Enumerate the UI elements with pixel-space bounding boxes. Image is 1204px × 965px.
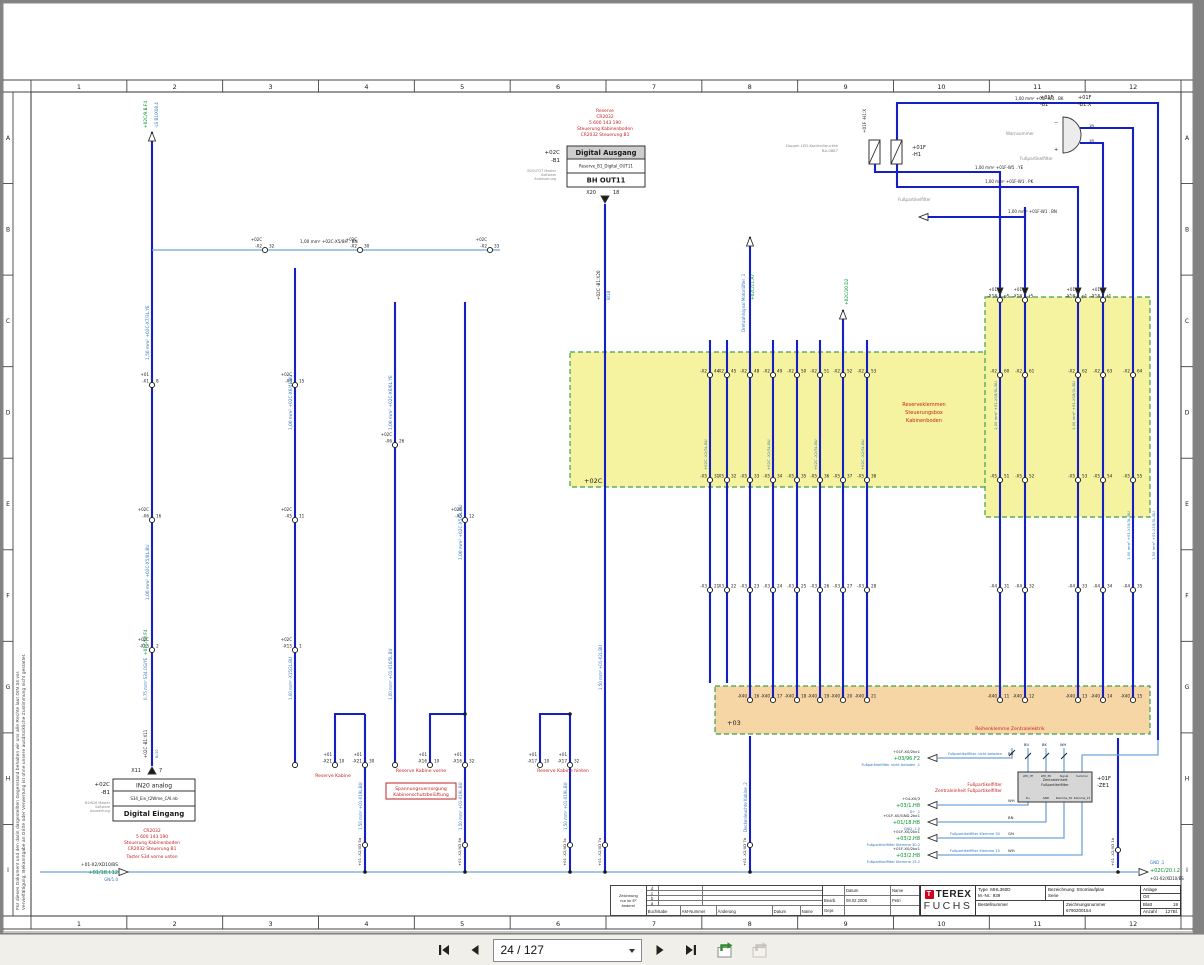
svg-text:-X2: -X2 xyxy=(350,244,357,249)
svg-text:-X5: -X5 xyxy=(787,474,794,479)
svg-text:64: 64 xyxy=(1137,369,1143,374)
svg-text:1,00 mm² +01-X18/1L.BU: 1,00 mm² +01-X18/1L.BU xyxy=(1071,381,1076,430)
svg-text:B/10: B/10 xyxy=(154,749,159,758)
next-view-button[interactable] xyxy=(744,938,774,962)
svg-text:+02C: +02C xyxy=(476,237,487,242)
svg-text:15: 15 xyxy=(1137,694,1143,699)
svg-text:+01: +01 xyxy=(354,752,363,757)
svg-text:-X5: -X5 xyxy=(285,514,292,519)
svg-text:1R: 1R xyxy=(1089,138,1094,143)
svg-text:Auswertung: Auswertung xyxy=(90,809,110,813)
svg-text:28: 28 xyxy=(871,584,877,589)
anlage-label: Anlage xyxy=(1143,887,1157,892)
svg-text:F: F xyxy=(1185,593,1189,600)
previous-page-icon xyxy=(468,943,482,957)
svg-text:Reserve Kabine vorne: Reserve Kabine vorne xyxy=(396,768,446,774)
svg-text:45: 45 xyxy=(731,369,737,374)
svg-text:+01 -X2/XD 1b: +01 -X2/XD 1b xyxy=(1110,837,1115,866)
type-cell: Type MHL360D M.-Nr.: 939 xyxy=(976,886,1046,900)
svg-text:Digital Eingang: Digital Eingang xyxy=(124,810,184,818)
svg-text:+02C/20.I.2: +02C/20.I.2 xyxy=(1150,868,1180,874)
svg-text:E: E xyxy=(6,501,10,508)
terex-fuchs-logo: TTEREX FUCHS xyxy=(921,886,976,915)
svg-text:50: 50 xyxy=(801,369,807,374)
last-page-button[interactable] xyxy=(678,938,704,962)
svg-text:7: 7 xyxy=(652,920,656,928)
svg-text:+01 -X2/XD 7b: +01 -X2/XD 7b xyxy=(742,837,747,866)
svg-text:+01: +01 xyxy=(989,287,998,292)
svg-text:-X40: -X40 xyxy=(1091,694,1101,699)
rev-letter: c xyxy=(647,891,659,895)
svg-text:-X6: -X6 xyxy=(385,439,392,444)
svg-text:+02C -X2/5L.BU: +02C -X2/5L.BU xyxy=(766,439,771,470)
svg-text:15: 15 xyxy=(299,379,305,384)
svg-text:GN/1.0: GN/1.0 xyxy=(104,877,118,882)
svg-text:+02C -B1:X11: +02C -B1:X11 xyxy=(143,729,148,758)
svg-text:37: 37 xyxy=(847,474,853,479)
first-page-icon xyxy=(437,943,451,957)
svg-text:26: 26 xyxy=(399,439,405,444)
svg-text:10: 10 xyxy=(937,920,945,928)
svg-text:7: 7 xyxy=(652,83,656,91)
svg-text:+04-X0/3: +04-X0/3 xyxy=(902,796,920,801)
svg-text:+01: +01 xyxy=(1014,287,1023,292)
svg-text:-X2: -X2 xyxy=(1015,369,1022,374)
svg-text:-X5: -X5 xyxy=(740,474,747,479)
svg-text:1,50 mm² +01-X2L.BU: 1,50 mm² +01-X2L.BU xyxy=(598,645,603,690)
svg-text:-X3: -X3 xyxy=(787,584,794,589)
svg-text:33: 33 xyxy=(494,244,500,249)
svg-text:+01/18.I.12: +01/18.I.12 xyxy=(88,870,118,876)
svg-text:-X5: -X5 xyxy=(857,474,864,479)
svg-text:+03/1.H8: +03/1.H8 xyxy=(896,803,920,809)
svg-text:+02C: +02C xyxy=(95,782,111,788)
svg-text:WH: WH xyxy=(1008,798,1015,803)
svg-text:12: 12 xyxy=(1029,694,1035,699)
svg-text:2: 2 xyxy=(173,83,177,91)
svg-text:Taster S34 vorne unten: Taster S34 vorne unten xyxy=(126,854,178,860)
svg-text:WH: WH xyxy=(1060,743,1067,747)
svg-text:Spannungsversorgung: Spannungsversorgung xyxy=(395,786,447,792)
svg-text:51: 51 xyxy=(1004,474,1010,479)
svg-text:1,50 mm² +01-X19L.BU: 1,50 mm² +01-X19L.BU xyxy=(458,782,463,830)
svg-text:-X1: -X1 xyxy=(142,379,149,384)
svg-text:3: 3 xyxy=(269,83,273,91)
svg-text:49: 49 xyxy=(777,369,783,374)
svg-text:14: 14 xyxy=(1107,694,1113,699)
svg-text:31: 31 xyxy=(1004,584,1010,589)
disclaimer-line-2: Vervielfältigung, Bekanntgabe an Dritte … xyxy=(21,100,27,910)
svg-text:+01: +01 xyxy=(1067,287,1076,292)
svg-text:-X2: -X2 xyxy=(857,369,864,374)
svg-text:38: 38 xyxy=(871,474,877,479)
svg-text:+02C/18.F4: +02C/18.F4 xyxy=(143,629,149,655)
svg-text:+02C: +02C xyxy=(545,150,561,156)
svg-text:+02C -B1:X20: +02C -B1:X20 xyxy=(596,270,601,300)
svg-text:25: 25 xyxy=(801,584,807,589)
svg-text:35: 35 xyxy=(801,474,807,479)
schematic-drawing: 112233445566778899101011111212AABBCCDDEE… xyxy=(0,0,1204,965)
title-block: TTEREX FUCHS Type MHL360D M.-Nr.: 939 Be… xyxy=(920,885,1181,916)
rev-col-name: Name xyxy=(891,886,919,895)
svg-text:8: 8 xyxy=(156,379,159,384)
svg-text:34: 34 xyxy=(777,474,783,479)
last-page-icon xyxy=(684,943,698,957)
svg-text:32: 32 xyxy=(574,759,580,764)
svg-text:H: H xyxy=(1185,776,1190,783)
svg-text:Ansteuerung: Ansteuerung xyxy=(534,177,556,181)
svg-text:-X18: -X18 xyxy=(988,294,998,299)
svg-text:-X40: -X40 xyxy=(1013,694,1023,699)
rev-letter: d xyxy=(647,886,659,890)
svg-text:33: 33 xyxy=(1082,584,1088,589)
svg-text:+01 -X2/XD 7a: +01 -X2/XD 7a xyxy=(597,838,602,866)
svg-text:-X2: -X2 xyxy=(787,369,794,374)
svg-text:-X2: -X2 xyxy=(1093,369,1100,374)
page-number-combobox[interactable]: 24 / 127 xyxy=(493,939,642,962)
previous-view-icon xyxy=(713,941,735,959)
svg-text:36: 36 xyxy=(824,474,830,479)
svg-text:-B1:X: -B1:X xyxy=(1078,102,1092,108)
svg-text:H: H xyxy=(6,776,11,783)
svg-text:35: 35 xyxy=(1137,584,1143,589)
svg-text:-X15: -X15 xyxy=(283,644,293,649)
ort-label: Ort xyxy=(1143,894,1149,899)
svg-text:-X40: -X40 xyxy=(831,694,841,699)
svg-text:-X40: -X40 xyxy=(808,694,818,699)
svg-text:12: 12 xyxy=(1129,920,1137,928)
svg-text:-X4: -X4 xyxy=(1015,584,1022,589)
svg-text:17: 17 xyxy=(777,694,783,699)
pdf-viewer-window: { "toolbar": { "page_value": "24 / 127",… xyxy=(0,0,1204,965)
svg-text:1,00 mm² +01F-W1 . BN: 1,00 mm² +01F-W1 . BN xyxy=(1008,209,1057,214)
svg-text:16: 16 xyxy=(754,694,760,699)
svg-text:+01 -X2/XD 5c: +01 -X2/XD 5c xyxy=(562,838,567,866)
svg-text:-X2: -X2 xyxy=(990,369,997,374)
svg-text:32: 32 xyxy=(269,244,275,249)
blatt-value: 19 xyxy=(1173,902,1178,907)
svg-text:-X40: -X40 xyxy=(1066,694,1076,699)
svg-text:1,00 mm² +02C-X6/6L.YE: 1,00 mm² +02C-X6/6L.YE xyxy=(388,375,394,430)
svg-text:2: 2 xyxy=(173,920,177,928)
svg-text:1,00 mm² +02C-X6/4L.BU: 1,00 mm² +02C-X6/4L.BU xyxy=(288,374,294,430)
svg-text:60: 60 xyxy=(1004,369,1010,374)
svg-text:B/18: B/18 xyxy=(606,290,611,300)
svg-text:1,50 mm² +02C-X7/3L.YE: 1,50 mm² +02C-X7/3L.YE xyxy=(145,305,151,360)
svg-text:1,00 mm² +02C-X5/8H . BN: 1,00 mm² +02C-X5/8H . BN xyxy=(300,239,358,244)
svg-text:-X40: -X40 xyxy=(1121,694,1131,699)
svg-text:-X2: -X2 xyxy=(833,369,840,374)
svg-text:10: 10 xyxy=(339,759,345,764)
svg-text:+02C: +02C xyxy=(138,507,149,512)
svg-text:24: 24 xyxy=(777,584,783,589)
svg-text:Reserve Kabine: Reserve Kabine xyxy=(315,773,351,779)
svg-text:6: 6 xyxy=(556,920,560,928)
svg-text:10: 10 xyxy=(937,83,945,91)
svg-text:+02C: +02C xyxy=(281,637,292,642)
svg-text:4: 4 xyxy=(364,920,368,928)
svg-text:-ZE1: -ZE1 xyxy=(1097,783,1109,789)
svg-text:+01F-X0/2bc1: +01F-X0/2bc1 xyxy=(893,749,921,754)
zeichnungsnummer-cell: Zeichnungsnummer 6790200154 xyxy=(1064,901,1140,915)
svg-text:-X40: -X40 xyxy=(761,694,771,699)
svg-text:+03/2.H8: +03/2.H8 xyxy=(896,836,920,842)
svg-text:Reserveklemmen: Reserveklemmen xyxy=(902,402,945,408)
svg-text:-X40: -X40 xyxy=(988,694,998,699)
rev-gepr-label: Gepr. xyxy=(823,906,845,915)
svg-text:21: 21 xyxy=(871,694,877,699)
rev-header-buchstabe: Buchstabe xyxy=(647,906,681,915)
svg-text:Steuerung Kabinenboden: Steuerung Kabinenboden xyxy=(124,840,180,846)
first-page-button[interactable] xyxy=(431,938,457,962)
rev-header-name: Name xyxy=(801,906,822,915)
svg-text:1: 1 xyxy=(299,644,302,649)
svg-text:-X3: -X3 xyxy=(740,584,747,589)
svg-text:1,00 mm² +01F-W5 . YE: 1,00 mm² +01F-W5 . YE xyxy=(975,165,1024,170)
svg-text:30: 30 xyxy=(364,244,370,249)
svg-text:22: 22 xyxy=(731,584,737,589)
svg-text:Klemme_30: Klemme_30 xyxy=(1056,796,1073,800)
svg-text:33: 33 xyxy=(754,474,760,479)
svg-text:-H1: -H1 xyxy=(912,152,921,158)
svg-text:+01: +01 xyxy=(559,752,568,757)
svg-text:+02C: +02C xyxy=(584,477,603,485)
svg-text:D+: D+ xyxy=(1026,796,1031,800)
svg-text:+01F: +01F xyxy=(1040,95,1054,101)
svg-text:-LS B1/X08.4: -LS B1/X08.4 xyxy=(154,102,159,128)
svg-text:+02C: +02C xyxy=(251,237,262,242)
svg-text:A: A xyxy=(1185,135,1190,142)
svg-text:1,00 mm² +01-X18/5L.BU: 1,00 mm² +01-X18/5L.BU xyxy=(993,381,998,430)
svg-text:-X2: -X2 xyxy=(810,369,817,374)
svg-text:9: 9 xyxy=(844,920,848,928)
svg-text:S34_Ein_t2Wme_CAI.nb: S34_Ein_t2Wme_CAI.nb xyxy=(130,796,178,801)
svg-text:Fußpartikelfilter: Fußpartikelfilter xyxy=(1020,156,1053,161)
svg-text:Fußpartikelfilter nicht belade: Fußpartikelfilter nicht beladen ,1 xyxy=(861,763,920,767)
svg-text:-X3: -X3 xyxy=(763,584,770,589)
svg-text:-X4: -X4 xyxy=(1093,584,1100,589)
svg-text:GND ,1: GND ,1 xyxy=(1150,860,1165,865)
svg-text:+01: +01 xyxy=(454,752,463,757)
svg-text:13: 13 xyxy=(1082,694,1088,699)
svg-text:8: 8 xyxy=(748,920,752,928)
zeichnungsnummer-value: 6790200154 xyxy=(1066,908,1091,913)
svg-text:CR2032: CR2032 xyxy=(596,114,613,120)
svg-text:-B1: -B1 xyxy=(101,790,110,796)
svg-text:52: 52 xyxy=(1029,474,1035,479)
svg-text:+01F-X0/GND.2bc1: +01F-X0/GND.2bc1 xyxy=(883,813,920,818)
svg-text:8: 8 xyxy=(748,83,752,91)
rev-col-datum: Datum xyxy=(845,886,891,895)
svg-text:-X40: -X40 xyxy=(738,694,748,699)
svg-text:11: 11 xyxy=(1033,83,1041,91)
svg-text:+01F-X0/2bc1: +01F-X0/2bc1 xyxy=(893,829,921,834)
svg-text:1,50 mm² +01-X19L.BU: 1,50 mm² +01-X19L.BU xyxy=(563,782,568,830)
svg-text:+02C/11.A7: +02C/11.A7 xyxy=(750,274,756,300)
bezeichnung-value: Stromlaufplan xyxy=(1077,887,1105,892)
svg-text:-X5: -X5 xyxy=(1123,474,1130,479)
svg-text:+01-X2/XD10/BS: +01-X2/XD10/BS xyxy=(1150,876,1184,881)
svg-text:Reserve Kabine hinten: Reserve Kabine hinten xyxy=(537,768,589,774)
svg-text:+02C: +02C xyxy=(281,507,292,512)
mnr-value: 939 xyxy=(993,893,1001,898)
svg-text:5 600 143 190: 5 600 143 190 xyxy=(136,834,168,840)
svg-text:Fußpartikelfilter: Fußpartikelfilter xyxy=(1041,783,1069,787)
svg-text:16: 16 xyxy=(156,514,162,519)
svg-text:BU: BU xyxy=(1008,751,1014,756)
next-view-icon xyxy=(748,941,770,959)
brand-fuchs: FUCHS xyxy=(924,900,973,912)
svg-text:-X3: -X3 xyxy=(833,584,840,589)
terex-logo-icon: T xyxy=(925,890,934,899)
svg-text:-X2: -X2 xyxy=(1068,369,1075,374)
svg-text:-X21: -X21 xyxy=(323,759,333,764)
svg-text:7: 7 xyxy=(159,768,162,774)
svg-text:12: 12 xyxy=(1129,83,1137,91)
dropdown-caret-icon xyxy=(629,949,635,953)
svg-text:I: I xyxy=(7,867,9,874)
svg-text:C: C xyxy=(1185,318,1189,325)
svg-text:B: B xyxy=(1185,226,1189,233)
svg-text:B: B xyxy=(6,226,10,233)
svg-text:-X4: -X4 xyxy=(990,584,997,589)
svg-text:-X5: -X5 xyxy=(810,474,817,479)
serie-label: Serie xyxy=(1048,893,1059,898)
svg-text:Fußpartikelfilter Klemme 15: Fußpartikelfilter Klemme 15 xyxy=(950,849,1000,853)
svg-text:55: 55 xyxy=(1137,474,1143,479)
svg-text:E: E xyxy=(1185,501,1189,508)
revision-table: d c b a Buchstabe AM-Nummer Änderung Dat… xyxy=(647,886,823,915)
svg-text:Fußpartikelfilter: Fußpartikelfilter xyxy=(898,197,931,202)
revision-sign-table: DatumName Bearb.08.02.2008Petri Gepr. xyxy=(823,886,919,915)
svg-text:32: 32 xyxy=(1029,584,1035,589)
page-number-value: 24 / 127 xyxy=(501,943,544,957)
svg-text:1,00 mm² -X15/2L.BU: 1,00 mm² -X15/2L.BU xyxy=(288,657,293,700)
svg-text:LED_PK: LED_PK xyxy=(1041,774,1052,778)
rev-header-aenderung: Änderung xyxy=(717,906,773,915)
svg-text:-X18: -X18 xyxy=(1091,294,1101,299)
svg-text:-X4: -X4 xyxy=(1068,584,1075,589)
svg-text:Reihenklemme Zentralelektrik: Reihenklemme Zentralelektrik xyxy=(975,726,1045,732)
svg-text:+03: +03 xyxy=(727,719,741,727)
svg-text:32: 32 xyxy=(731,474,737,479)
svg-text:p1: p1 xyxy=(1082,294,1088,299)
svg-text:+03/96.F2: +03/96.F2 xyxy=(894,756,920,762)
svg-text:+01F: +01F xyxy=(1097,776,1111,782)
svg-text:53: 53 xyxy=(1082,474,1088,479)
svg-text:-X5: -X5 xyxy=(1068,474,1075,479)
svg-text:-X21: -X21 xyxy=(353,759,363,764)
previous-view-button[interactable] xyxy=(709,938,739,962)
svg-text:CR2032 Steuerung B1: CR2032 Steuerung B1 xyxy=(581,132,630,138)
svg-text:CR2032: CR2032 xyxy=(143,828,160,834)
svg-text:-X6: -X6 xyxy=(142,514,149,519)
svg-text:t1: t1 xyxy=(1107,294,1112,299)
viewer-chrome: 112233445566778899101011111212AABBCCDDEE… xyxy=(0,0,1204,965)
svg-text:32: 32 xyxy=(469,759,475,764)
svg-text:LED_YE: LED_YE xyxy=(1023,774,1034,778)
svg-text:BK: BK xyxy=(1042,743,1047,747)
svg-text:Steuerungsbox: Steuerungsbox xyxy=(905,410,943,416)
svg-text:Reserve_B1_Digital_OUT11: Reserve_B1_Digital_OUT11 xyxy=(579,164,633,169)
svg-text:-X5: -X5 xyxy=(833,474,840,479)
svg-text:G: G xyxy=(1185,684,1190,691)
brand-terex: TEREX xyxy=(936,889,972,900)
svg-text:+01: +01 xyxy=(141,372,150,377)
svg-text:-X17: -X17 xyxy=(558,759,568,764)
svg-text:t5: t5 xyxy=(1029,294,1034,299)
frame-disclaimer-text: Für dieses Dokument und den darin darges… xyxy=(15,100,30,910)
svg-text:-X40: -X40 xyxy=(785,694,795,699)
svg-text:62: 62 xyxy=(1082,369,1088,374)
svg-text:-X5: -X5 xyxy=(1093,474,1100,479)
svg-text:Fußpartikelfilter nicht belade: Fußpartikelfilter nicht beladen xyxy=(948,752,1002,756)
svg-text:WH: WH xyxy=(1008,848,1015,853)
svg-text:Summer: Summer xyxy=(1076,774,1089,778)
svg-text:-X2: -X2 xyxy=(480,244,487,249)
svg-text:Warnsummer: Warnsummer xyxy=(1006,131,1034,136)
svg-text:-X2: -X2 xyxy=(1123,369,1130,374)
svg-text:-B1: -B1 xyxy=(1040,102,1048,108)
previous-page-button[interactable] xyxy=(462,938,488,962)
svg-text:+02C -X2/5L.BU: +02C -X2/5L.BU xyxy=(813,439,818,470)
svg-text:61: 61 xyxy=(1029,369,1035,374)
svg-text:2: 2 xyxy=(156,644,159,649)
svg-text:-X3: -X3 xyxy=(810,584,817,589)
svg-text:11: 11 xyxy=(1033,920,1041,928)
svg-text:+01/18.H8: +01/18.H8 xyxy=(893,820,920,826)
rev-header-datum: Datum xyxy=(773,906,801,915)
svg-text:+01: +01 xyxy=(1092,287,1101,292)
svg-text:-X18: -X18 xyxy=(1013,294,1023,299)
svg-text:48: 48 xyxy=(754,369,760,374)
svg-text:+01 -X2/XD 5b: +01 -X2/XD 5b xyxy=(457,837,462,866)
svg-text:-X5: -X5 xyxy=(763,474,770,479)
rev-letter: a xyxy=(647,901,659,905)
svg-text:-X2: -X2 xyxy=(763,369,770,374)
svg-text:Zentraleinheit Fußpartikelfilt: Zentraleinheit Fußpartikelfilter xyxy=(935,788,1002,794)
svg-text:-X18: -X18 xyxy=(1066,294,1076,299)
svg-text:6: 6 xyxy=(556,83,560,91)
svg-text:Digital Ausgang: Digital Ausgang xyxy=(576,149,637,157)
svg-text:CR2032 Steuerung B1: CR2032 Steuerung B1 xyxy=(128,846,177,852)
svg-text:3: 3 xyxy=(269,920,273,928)
svg-text:Zentraleinheit: Zentraleinheit xyxy=(1043,778,1068,782)
svg-text:12: 12 xyxy=(469,514,475,519)
type-value: MHL360D xyxy=(990,887,1010,892)
svg-text:5: 5 xyxy=(460,920,464,928)
svg-text:-X17: -X17 xyxy=(528,759,538,764)
svg-text:30: 30 xyxy=(369,759,375,764)
svg-text:−: − xyxy=(1054,120,1058,126)
svg-text:p5: p5 xyxy=(1004,294,1010,299)
svg-text:23: 23 xyxy=(754,584,760,589)
svg-text:1,00 mm² +01-X16/5L.BU: 1,00 mm² +01-X16/5L.BU xyxy=(388,649,393,700)
next-page-button[interactable] xyxy=(647,938,673,962)
svg-text:A: A xyxy=(6,135,11,142)
svg-text:52: 52 xyxy=(847,369,853,374)
next-page-icon xyxy=(653,943,667,957)
svg-text:+01F-X0/2bc1: +01F-X0/2bc1 xyxy=(893,846,921,851)
svg-text:10: 10 xyxy=(434,759,440,764)
svg-text:53: 53 xyxy=(871,369,877,374)
svg-text:Kabinenschutzbelüftung: Kabinenschutzbelüftung xyxy=(393,792,449,798)
svg-text:+02C/9.B.F4: +02C/9.B.F4 xyxy=(143,101,149,128)
svg-text:-X5: -X5 xyxy=(700,474,707,479)
svg-text:1R: 1R xyxy=(1089,123,1094,128)
svg-text:IN20 analog: IN20 analog xyxy=(136,782,172,789)
svg-text:F: F xyxy=(6,593,10,600)
